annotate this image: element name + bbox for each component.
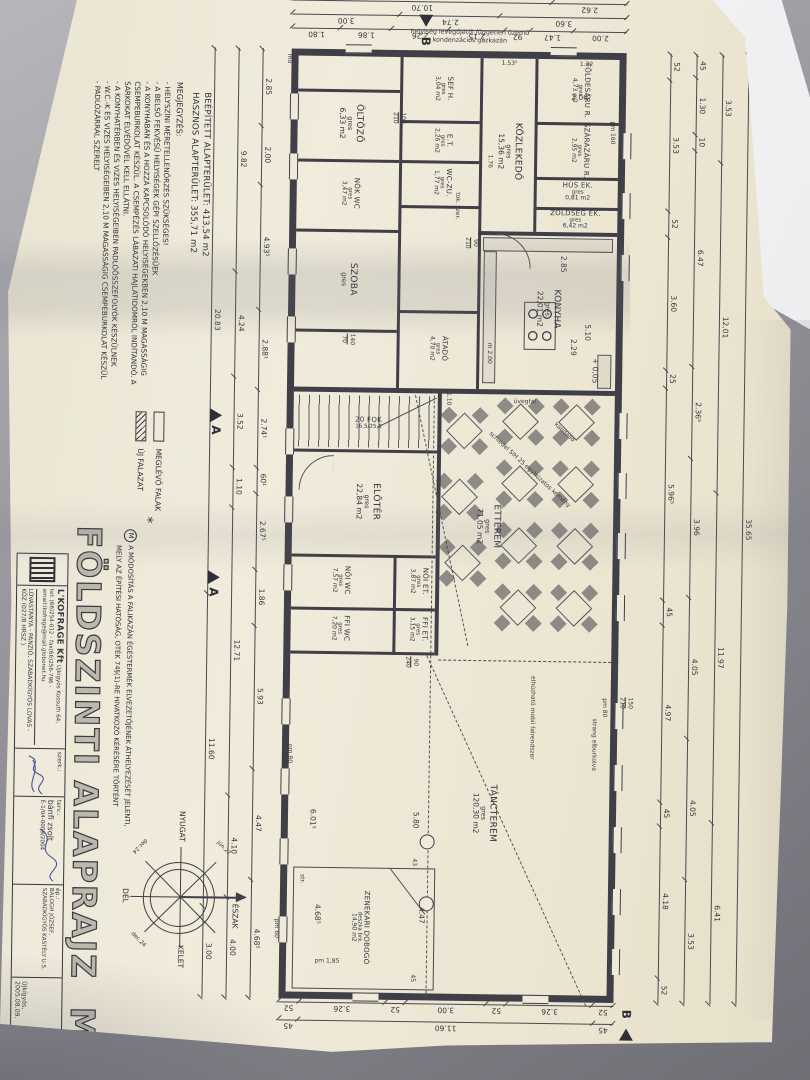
pass-height-label: m 2.00: [486, 343, 493, 364]
room-label-etterem: ÉTTEREMgres71,05 m2: [475, 504, 500, 548]
room-label-zenekari-dobogo: ZENEKARI DOBOGÓdeszka brk.14,90 m2: [349, 890, 370, 964]
dim-chain-right-outer: 4511.6045: [278, 1019, 613, 1037]
existing-wall-swatch: [153, 412, 164, 442]
dim-segment: 3.26: [507, 1005, 593, 1018]
dim-segment: 52: [593, 1006, 614, 1018]
dim-kitchen2: 2.85: [559, 256, 568, 273]
dim-segment: 6.47: [692, 150, 707, 366]
window-opening: [613, 827, 622, 853]
dim-segment: 10.70: [292, 0, 552, 15]
compass-rose-icon: ÉSZAK KELET DÉL NYUGAT jún.22 dec.24 dec…: [127, 844, 232, 949]
tok-szer-label: tok. szer.: [454, 192, 461, 219]
room-label-konyha: KONYHAgres22,01 m2: [535, 289, 560, 329]
designer-registration: É-1/04-0009/2004: [37, 800, 45, 881]
dim-chain-top-mid: 451.30106.472.36⁵3.964.054.053.53: [683, 54, 709, 1004]
project-name: LOVASTANYA - PANZIÓ, SZABADKÍGYÓS LOVAS …: [17, 588, 38, 744]
level-mark: + 0,05: [591, 358, 600, 383]
dim-segment: 45: [663, 600, 675, 624]
room-label-et: E.T.gres2,26 m2: [432, 128, 452, 153]
dim-segment: 25: [666, 370, 678, 388]
compass-dec24-label: dec.24: [130, 931, 147, 949]
editor-field: szerk.:: [14, 748, 65, 797]
dim-pod2: 4.68⁵: [313, 904, 322, 924]
dim-kitchen: 5.10: [583, 324, 592, 341]
dim-segment: 45: [593, 1024, 613, 1036]
dim-chain-right-inner: 523.26523.00523.2652: [278, 1001, 613, 1019]
legend-new-walls: ÚJ FALAZAT: [134, 411, 146, 511]
window-opening: [617, 533, 626, 559]
dim-pod1: 4.47: [417, 907, 426, 924]
room-label-tancterem: TÁNCTEREMgres120,30 m2: [471, 784, 497, 842]
room-label-noi-et: NŐI ET.gres3,87 m2: [408, 568, 428, 596]
window-opening: [622, 133, 631, 159]
room-label-zoldseg-ek: ZÖLDSÉG EK.gres6,42 m2: [550, 210, 601, 231]
compass-north-label: ÉSZAK: [230, 904, 239, 929]
dim-segment: 2.36⁵: [691, 366, 704, 458]
dim-segment: 4.05: [685, 738, 699, 879]
dim-chain-bottom-inner: 2.852.004.93⁵2.88¹2.74¹60¹2.67⁵1.865.934…: [249, 48, 275, 998]
room-label-ffi-et: FFI ET.gres3,15 m2: [407, 617, 427, 642]
room-label-hus-ek: HÚS EK.gres0,81 m2: [562, 182, 593, 202]
company-name: L'KOFRAGE Kft: [54, 589, 65, 664]
dim-segment: 2.62: [552, 3, 627, 16]
dim-segment: 11.60: [298, 1020, 593, 1036]
compass-dec24-label-2: dec.24: [131, 837, 149, 854]
dim-segment: 4.97: [660, 624, 674, 801]
dim-segment: 2.74¹: [257, 389, 270, 467]
m-circle-mark: M: [124, 529, 137, 542]
dim-chain-top-outer: 3.5312.0111.976.41: [709, 54, 735, 1004]
pm80-label: pm 80: [601, 698, 608, 717]
dim-segment: 2.67⁵: [255, 493, 268, 570]
dim-segment: 3.60: [666, 237, 680, 370]
builder-field: ép.: BALOGH JÓZSEF, SZABADKÍGYÓS KASTÉLY…: [12, 884, 63, 978]
window-opening: [618, 413, 627, 439]
dim-segment: 52: [657, 977, 669, 1004]
company-contact: tel: (66)254-012 - fax(66)256-796 - emai…: [37, 589, 54, 745]
dim-segment: 1.30: [696, 77, 709, 134]
dim-segment: 52: [668, 211, 680, 238]
compass-west-label: NYUGAT: [178, 811, 187, 842]
section-marker-a2: A: [202, 570, 227, 597]
dim-segment: 52: [278, 1001, 299, 1013]
dim-segment: 6.41: [709, 823, 724, 1005]
opening-size-label: 90210: [464, 237, 478, 249]
window-opening: [290, 93, 299, 119]
dim-segment: 3.00: [405, 1003, 486, 1016]
room-label-stairs-20-fok: 20 FOK16,5/25,6: [355, 417, 382, 431]
window-opening: [279, 838, 288, 864]
useful-area-line: HASZNOS ALAPTERÜLET: 355,71 m2: [186, 92, 201, 257]
window-opening: [283, 564, 292, 590]
section-marker-b: B: [419, 15, 433, 46]
dim-segment: 4.47: [251, 767, 265, 879]
compass-east-label: KELET: [176, 945, 185, 968]
section-marker-a: A: [204, 408, 229, 435]
floor-plan-drawing: ÖLTÖZŐgres6,33 m2 SEF H.gres3,04 m2 NŐK …: [8, 0, 793, 1065]
window-opening: [612, 889, 621, 915]
compass-south-label: DÉL: [121, 888, 130, 903]
built-area-line: BEÉPÍTETT ALAPTERÜLET: 413,54 m2: [198, 92, 213, 257]
company-logo: [17, 554, 67, 586]
dim-segment: 11.97: [712, 493, 729, 823]
remarks-block: MEGJEGYZÉS: - HELYSZÍNI MÉRETELLENŐRZÉS …: [88, 81, 185, 404]
window-opening: [288, 248, 297, 274]
dim-segment: 1.47: [531, 31, 574, 44]
dim-segment: 1.86: [341, 28, 391, 41]
opening-size-label: 14070: [340, 333, 354, 345]
room-label-noi-wc: NŐI WCgres7,57 m2: [330, 566, 350, 595]
dim-segment: 3.52: [233, 376, 246, 467]
window-opening: [287, 316, 296, 342]
room-label-szoba: SZOBAgres: [340, 263, 357, 296]
dim-segment: 3.96: [689, 458, 703, 597]
dim-segment: 1.10: [232, 467, 245, 507]
dim-segment: 9.82: [236, 48, 251, 271]
room-label-sef-h: SEF H.gres3,04 m2: [433, 76, 453, 101]
modification-note: MA MÓDOSÍTÁS A FALIKAZÁN ÉGÉSTERMÉK ELVE…: [110, 529, 137, 827]
dim-e1: 1.76: [487, 154, 494, 167]
dim-segment: 3.53: [683, 879, 697, 1004]
dim-segment: 2.00: [574, 31, 627, 44]
company-info: L'KOFRAGE Kft Újkígyós Kossuth 64; tel: …: [15, 585, 67, 749]
designer-name: bánfi zsolt: [44, 800, 55, 881]
drawing-paper-sheet: ÖLTÖZŐgres6,33 m2 SEF H.gres3,04 m2 NŐK …: [0, 0, 810, 1080]
window-opening: [616, 595, 625, 621]
room-label-wc-zu: WC-ZU.gres1,77 m2: [432, 168, 452, 197]
room-label-oltozo: ÖLTÖZŐgres6,33 m2: [338, 104, 363, 143]
pm80-label-2: pm 80: [286, 744, 293, 763]
company-address: Újkígyós Kossuth 64;: [54, 665, 61, 723]
dim-segment: 60¹: [257, 467, 269, 492]
mo-label: mo: [286, 54, 293, 64]
area-summary: BEÉPÍTETT ALAPTERÜLET: 413,54 m2 HASZNOS…: [186, 92, 213, 257]
dim-segment: 52: [486, 1004, 507, 1016]
star-mark: *: [139, 516, 155, 523]
room-label-ffi-wc: FFI WCgres7,20 m2: [329, 615, 349, 641]
window-opening: [551, 47, 577, 56]
dim-e3: 1.53⁵: [502, 60, 518, 67]
dim-hall-w2: 6.01⁵: [308, 809, 317, 829]
builder-name: BALOGH JÓZSEF, SZABADKÍGYÓS KASTÉLY U.5.: [39, 888, 54, 975]
window-opening: [522, 995, 548, 1004]
opening-size-label: 90240: [404, 656, 418, 668]
dim-segment: 1.86: [255, 569, 268, 625]
opening-size-label: 100210: [392, 112, 406, 124]
window-opening: [620, 255, 629, 281]
dim-segment: 92: [505, 30, 531, 42]
room-label-kozlekedo: KÖZLEKEDŐgres15,36 m2: [496, 122, 522, 180]
dim-segment: 45: [660, 801, 672, 825]
dim-segment: 4.05: [687, 597, 701, 738]
room-label-foldesaru: FÖLDESÁRU R.gres4,73 m2: [570, 63, 591, 119]
dim-segment: 2.00: [261, 125, 274, 184]
dim-segment: 3.26: [299, 1002, 385, 1015]
room-label-eloter: ELŐTÉRgres22,84 m2: [355, 483, 380, 520]
room-label-szarazaru: SZÁRAZÁRU R.gres2,95 m2: [569, 123, 590, 179]
dim-segment: 4.18: [658, 826, 672, 978]
dim-segment: 45: [278, 1019, 298, 1031]
dim-col1: 43: [411, 858, 418, 866]
dim-segment: 5.93: [253, 625, 267, 768]
mobile-wall-label: elhúzható mobil falrendszer: [528, 676, 536, 760]
dim-segment: 3.53: [721, 54, 735, 162]
dim-k3: 2.29: [569, 339, 578, 356]
designer-field: terv.: bánfi zsolt É-1/04-0009/2004: [13, 796, 64, 885]
remark-item: - A KONYHÁBAN ÉS A HOZZÁ KAPCSOLÓDÓ HELY…: [118, 81, 152, 403]
opening-size-label: 150210: [618, 697, 632, 709]
window-opening: [613, 765, 622, 791]
remarks-header: MEGJEGYZÉS:: [170, 82, 186, 404]
dim-segment: 12.01: [717, 162, 734, 493]
str-label: str.: [299, 874, 306, 883]
dim-segment: 3.00: [292, 13, 400, 27]
window-opening: [281, 698, 290, 724]
pm60-label: pm 60: [273, 919, 280, 938]
window-opening: [289, 153, 298, 179]
dim-e4: 1.22: [580, 61, 593, 68]
dim-segment: 52: [385, 1003, 406, 1015]
window-opening: [617, 473, 626, 499]
room-label-atado: ÁTADÓgres4,70 m2: [427, 336, 447, 361]
dim-col2: 45: [409, 974, 416, 982]
dim-hall-w: 5.80: [411, 812, 420, 829]
window-opening: [611, 949, 620, 975]
editor-signature: [20, 751, 51, 797]
dim-segment: 5.96⁵: [663, 388, 678, 600]
dim-segment: 12.71: [228, 506, 244, 794]
dim-segment: 4.24: [234, 270, 247, 376]
dim-segment: 3.53: [668, 80, 682, 211]
drawing-title: FÖLDSZINTI ALAPRAJZ M=1:100: [61, 525, 109, 1080]
window-opening: [346, 44, 372, 53]
title-block-stamp: L'KOFRAGE Kft Újkígyós Kossuth 64; tel: …: [10, 553, 69, 1052]
dim-segment: 45: [696, 54, 708, 78]
dim-segment: 2.88¹: [258, 309, 271, 390]
legend-existing-walls: MEGLÉVŐ FALAK: [152, 412, 164, 512]
room-label-nok-wc: NŐK WCgres3,47 m2: [340, 178, 360, 209]
pm185-label: pm 1,85: [314, 957, 339, 964]
new-wall-swatch: [135, 411, 146, 441]
dim-chain-top-inner: 523.53523.60255.96⁵454.97454.1852: [657, 54, 683, 1004]
window-opening: [352, 992, 378, 1001]
date-field: Újkígyós, 2005.08.09.: [11, 978, 62, 1050]
section-marker-b2: B: [619, 1010, 633, 1041]
duct-label: strang elburkolva: [590, 718, 598, 770]
dim-segment: 2.15: [449, 30, 505, 43]
window-opening: [621, 193, 630, 219]
dim-segment: 3.60: [500, 16, 627, 30]
dim-e2: 1.10: [445, 392, 452, 405]
pm160-label: pm 160: [609, 121, 616, 144]
dim-segment: 2.85: [262, 48, 275, 125]
window-opening: [285, 428, 294, 454]
wall-legend: MEGLÉVŐ FALAK ÚJ FALAZAT: [127, 411, 164, 511]
dim-segment: 10: [695, 134, 707, 150]
floor-plan-photo: ÖLTÖZŐgres6,33 m2 SEF H.gres3,04 m2 NŐK …: [0, 0, 810, 1080]
dim-segment: 1.80: [292, 27, 341, 40]
glass-wall-label: üvegfal: [514, 398, 536, 405]
dim-k4: 2.06⁵: [571, 93, 591, 102]
window-opening: [280, 768, 289, 794]
window-opening: [284, 496, 293, 522]
dim-segment: 52: [670, 54, 682, 81]
dim-segment: 4.93⁵: [259, 184, 273, 308]
